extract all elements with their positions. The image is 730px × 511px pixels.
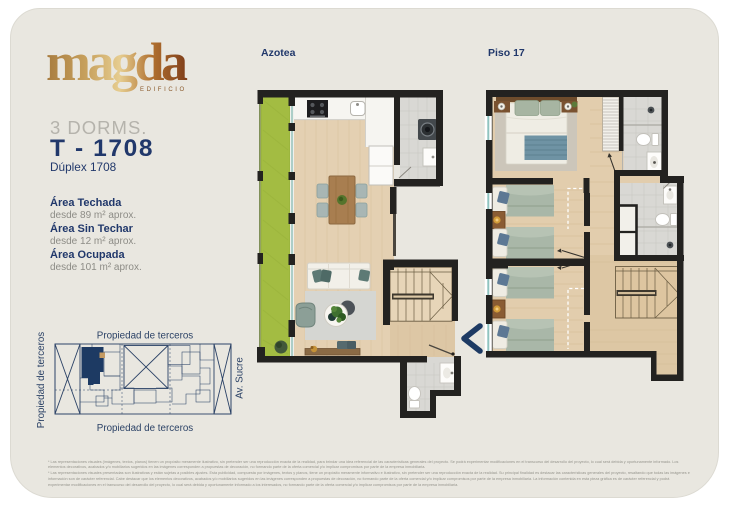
svg-text:Propiedad de terceros: Propiedad de terceros <box>97 423 193 434</box>
svg-text:Propiedad de terceros: Propiedad de terceros <box>97 331 193 342</box>
svg-text:Av. Sucre: Av. Sucre <box>235 357 246 399</box>
svg-text:EDIFICIO: EDIFICIO <box>140 87 187 93</box>
svg-text:magda: magda <box>46 40 188 92</box>
svg-text:Propiedad de terceros: Propiedad de terceros <box>36 332 47 428</box>
